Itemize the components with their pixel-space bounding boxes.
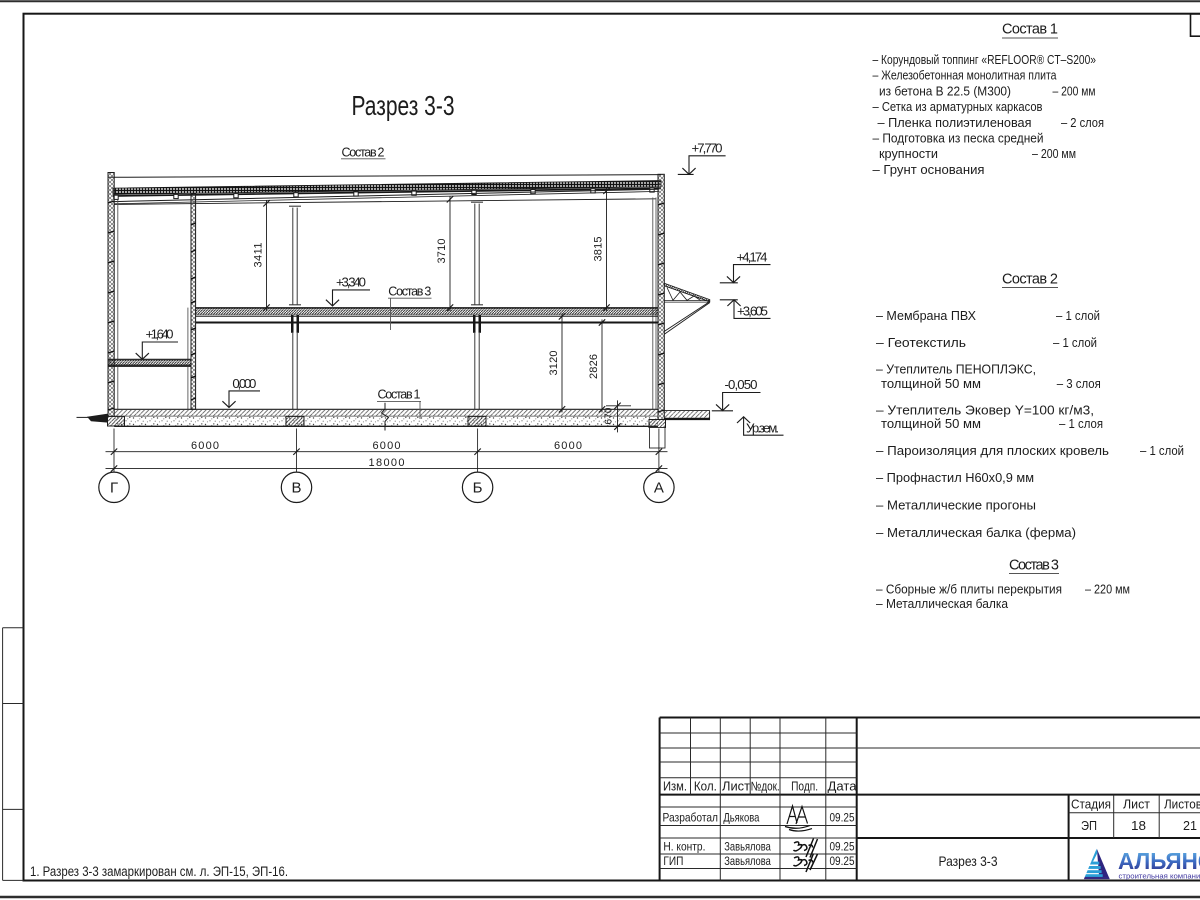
svg-text:3710: 3710	[436, 239, 448, 264]
svg-text:+3,605: +3,605	[737, 303, 768, 318]
svg-text:Завьялова: Завьялова	[724, 854, 771, 868]
svg-text:Завьялова: Завьялова	[724, 840, 771, 854]
svg-text:+1,640: +1,640	[146, 327, 174, 342]
svg-text:18000: 18000	[369, 457, 405, 469]
svg-text:А: А	[654, 480, 664, 497]
svg-text:Листов: Листов	[1164, 796, 1200, 811]
svg-text:– Подготовка из песка средней: – Подготовка из песка средней	[873, 131, 1044, 146]
svg-text:Лист: Лист	[1123, 796, 1150, 811]
svg-text:18: 18	[1131, 818, 1146, 833]
svg-text:– Металлические прогоны: – Металлические прогоны	[876, 498, 1036, 513]
svg-text:– 1 слоя: – 1 слоя	[1059, 416, 1103, 431]
svg-text:крупности: крупности	[879, 146, 938, 161]
svg-text:ГИП: ГИП	[663, 854, 683, 868]
svg-text:Б: Б	[473, 480, 483, 497]
svg-text:6000: 6000	[191, 440, 219, 452]
svg-text:– Пленка полиэтиленовая: – Пленка полиэтиленовая	[878, 115, 1032, 130]
svg-text:Г: Г	[110, 480, 118, 497]
svg-text:09.25: 09.25	[830, 854, 855, 868]
svg-text:– 1 слой: – 1 слой	[1140, 443, 1184, 458]
svg-text:3411: 3411	[253, 243, 265, 268]
svg-text:Разработал: Разработал	[663, 811, 719, 825]
svg-text:– 220 мм: – 220 мм	[1085, 581, 1130, 596]
svg-text:09.25: 09.25	[830, 840, 855, 854]
svg-text:– Мембрана ПВХ: – Мембрана ПВХ	[876, 308, 976, 323]
svg-text:– Профнастил Н60х0,9 мм: – Профнастил Н60х0,9 мм	[876, 470, 1034, 485]
svg-text:+4,174: +4,174	[737, 249, 768, 264]
svg-text:+7,770: +7,770	[692, 140, 723, 155]
svg-text:21: 21	[1183, 818, 1197, 833]
svg-text:Стадия: Стадия	[1071, 796, 1111, 811]
svg-text:– Металлическая балка (ферма): – Металлическая балка (ферма)	[876, 525, 1076, 540]
svg-text:В: В	[291, 480, 301, 497]
svg-text:0,000: 0,000	[232, 376, 256, 391]
svg-text:Лист: Лист	[722, 779, 750, 794]
svg-text:– Сетка из арматурных каркасов: – Сетка из арматурных каркасов	[873, 99, 1043, 114]
svg-text:– Металлическая балка: – Металлическая балка	[876, 596, 1009, 611]
svg-text:09.25: 09.25	[830, 811, 855, 825]
svg-text:– Корундовый топпинг «REFLOOR®: – Корундовый топпинг «REFLOOR® CT–S200»	[873, 52, 1097, 67]
svg-text:толщиной 50 мм: толщиной 50 мм	[881, 416, 981, 431]
svg-text:6000: 6000	[373, 440, 401, 452]
svg-text:-0,050: -0,050	[725, 377, 758, 392]
svg-text:толщиной 50 мм: толщиной 50 мм	[881, 376, 981, 391]
svg-text:– Утеплитель ПЕНОПЛЭКС,: – Утеплитель ПЕНОПЛЭКС,	[876, 362, 1036, 377]
svg-text:Состав 2: Состав 2	[342, 145, 385, 159]
svg-text:– Железобетонная монолитная п: – Железобетонная монолитная плита	[873, 68, 1058, 83]
svg-text:АЛЬЯНС: АЛЬЯНС	[1118, 848, 1200, 874]
svg-text:Разрез 3-3: Разрез 3-3	[352, 90, 455, 121]
svg-text:Состав 1: Состав 1	[1002, 22, 1058, 38]
svg-text:Состав 1: Состав 1	[378, 388, 421, 402]
svg-text:670: 670	[604, 407, 615, 424]
svg-text:– Пароизоляция для плоских кро: – Пароизоляция для плоских кровель	[876, 443, 1109, 458]
svg-text:3120: 3120	[548, 351, 560, 376]
svg-text:из бетона В 22.5 (М300): из бетона В 22.5 (М300)	[879, 83, 1011, 98]
svg-text:ЭП: ЭП	[1081, 818, 1097, 833]
svg-text:– 1 слой: – 1 слой	[1053, 335, 1097, 350]
svg-text:+3,340: +3,340	[336, 275, 366, 290]
svg-text:– 3 слоя: – 3 слоя	[1057, 376, 1101, 391]
svg-text:Н. контр.: Н. контр.	[663, 840, 705, 854]
svg-text:Состав 2: Состав 2	[1002, 272, 1058, 288]
svg-text:3815: 3815	[593, 237, 605, 262]
svg-text:– Грунт основания: – Грунт основания	[873, 162, 985, 177]
svg-text:– Геотекстиль: – Геотекстиль	[876, 335, 966, 350]
svg-text:Изм.: Изм.	[663, 779, 687, 794]
svg-text:№док.: №док.	[751, 779, 780, 794]
svg-text:Дьякова: Дьякова	[723, 811, 759, 825]
svg-text:6000: 6000	[554, 440, 582, 452]
svg-text:Состав 3: Состав 3	[388, 285, 431, 299]
svg-text:Состав 3: Состав 3	[1009, 558, 1059, 574]
svg-text:Ур.зем.: Ур.зем.	[746, 420, 779, 435]
svg-text:строительная компания: строительная компания	[1119, 873, 1200, 880]
svg-text:Разрез 3-3: Разрез 3-3	[939, 854, 998, 869]
svg-text:– 200 мм: – 200 мм	[1032, 146, 1076, 161]
svg-text:– 2 слоя: – 2 слоя	[1061, 115, 1104, 130]
svg-text:– 1 слой: – 1 слой	[1056, 308, 1100, 323]
svg-text:– 200 мм: – 200 мм	[1053, 83, 1096, 98]
svg-text:Дата: Дата	[828, 779, 858, 794]
svg-text:2826: 2826	[588, 354, 600, 379]
svg-text:1. Разрез 3-3 замаркирован см.: 1. Разрез 3-3 замаркирован см. л. ЭП-15,…	[30, 864, 288, 879]
svg-text:– Сборные ж/б плиты перекрытия: – Сборные ж/б плиты перекрытия	[876, 581, 1062, 596]
svg-text:Подп.: Подп.	[791, 779, 818, 794]
svg-text:Кол.: Кол.	[694, 779, 717, 794]
